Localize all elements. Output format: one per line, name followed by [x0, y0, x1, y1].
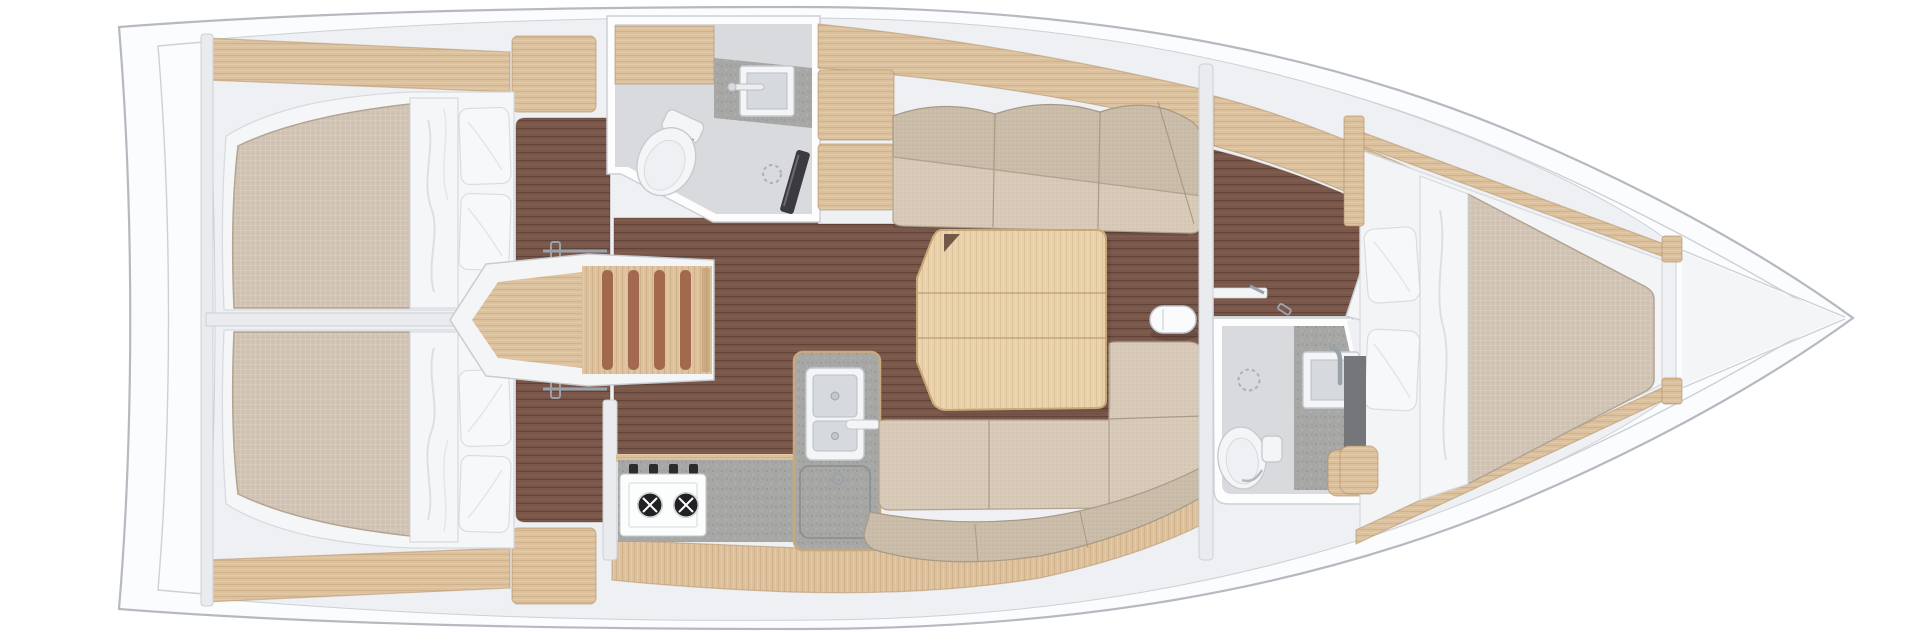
stove-knob — [649, 464, 658, 474]
entry-step — [1340, 446, 1378, 494]
companionway — [450, 254, 714, 386]
forward-bulkhead — [1199, 64, 1213, 560]
sink-basin — [747, 73, 787, 109]
stair-treads — [582, 266, 712, 374]
stove-knob — [629, 464, 638, 474]
settee-top — [893, 102, 1202, 235]
sink-drain — [831, 392, 839, 400]
pillow — [459, 193, 512, 271]
burner — [638, 493, 663, 518]
cabin-floor — [516, 118, 610, 268]
toilet-pump — [1262, 436, 1282, 462]
aft-cabin-divider-wall — [206, 313, 458, 326]
stair-tread-gap — [602, 270, 613, 370]
faucet-head — [728, 83, 736, 91]
stove — [620, 464, 706, 536]
burner — [674, 493, 699, 518]
wardrobe — [512, 36, 596, 112]
stair-tread-gap — [654, 270, 665, 370]
mast-post — [1150, 306, 1198, 341]
table-top — [917, 230, 1106, 410]
stair-nosing — [702, 268, 710, 372]
yacht-floorplan-canvas — [0, 0, 1920, 640]
pillow — [459, 107, 512, 185]
settee-bottom-seats — [879, 420, 1109, 510]
galley-bulkhead — [603, 400, 617, 560]
overhead-cabinet — [615, 26, 714, 84]
boat-floorplan — [0, 0, 1920, 640]
entry-floor — [1344, 356, 1366, 452]
stair-tread-gap — [628, 270, 639, 370]
bed-runner — [410, 98, 458, 308]
side-shelf — [1344, 116, 1364, 226]
stove-knob — [689, 464, 698, 474]
stove-knob — [669, 464, 678, 474]
stair-tread-gap — [680, 270, 691, 370]
faucet — [846, 420, 880, 429]
cabinet — [818, 70, 894, 140]
sink-drain — [832, 433, 839, 440]
mast-post-body — [1150, 306, 1196, 333]
dining-table — [917, 230, 1111, 416]
bulkhead-block — [1662, 378, 1682, 404]
bulkhead-block — [1662, 236, 1682, 262]
cabinet — [818, 144, 894, 210]
